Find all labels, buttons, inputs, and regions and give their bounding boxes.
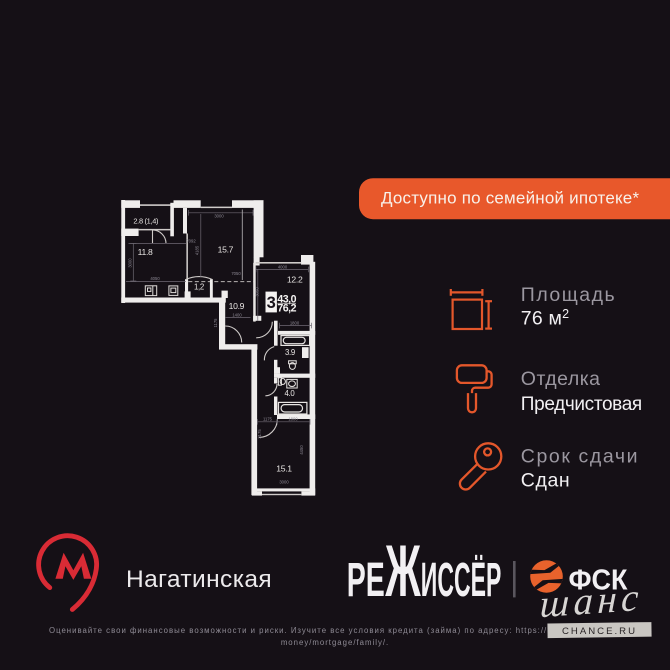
svg-text:Нагатинская: Нагатинская: [126, 566, 272, 593]
svg-text:1800: 1800: [288, 417, 298, 422]
svg-text:4450: 4450: [299, 445, 304, 455]
svg-text:Сдан: Сдан: [521, 469, 570, 491]
svg-text:шанс: шанс: [539, 576, 643, 626]
svg-text:CHANCE.RU: CHANCE.RU: [562, 626, 637, 637]
svg-text:1400: 1400: [232, 312, 242, 317]
svg-text:7092: 7092: [186, 239, 196, 244]
svg-text:3175: 3175: [257, 429, 262, 439]
svg-text:1175: 1175: [213, 318, 218, 328]
svg-text:3050: 3050: [255, 287, 260, 297]
svg-text:15.1: 15.1: [276, 464, 292, 474]
svg-text:4185: 4185: [195, 245, 200, 255]
svg-text:РЕ: РЕ: [347, 553, 385, 607]
svg-text:12.2: 12.2: [287, 274, 303, 284]
svg-text:Оценивайте свои финансовые воз: Оценивайте свои финансовые возможности и…: [49, 626, 627, 635]
svg-text:3.9: 3.9: [285, 348, 295, 357]
svg-text:10.9: 10.9: [229, 301, 245, 311]
svg-text:Доступно по семейной ипотеке*: Доступно по семейной ипотеке*: [381, 188, 639, 207]
svg-text:3: 3: [267, 294, 276, 312]
svg-text:Отделка: Отделка: [521, 368, 601, 390]
svg-text:1800: 1800: [290, 320, 300, 325]
svg-text:15.7: 15.7: [218, 244, 234, 254]
svg-text:Срок сдачи: Срок сдачи: [521, 446, 639, 468]
svg-text:Ж: Ж: [385, 531, 421, 612]
svg-text:1175: 1175: [263, 417, 273, 422]
svg-text:2.8 (1,4): 2.8 (1,4): [133, 216, 158, 225]
svg-text:Площадь: Площадь: [521, 284, 616, 306]
svg-text:76,2: 76,2: [277, 303, 296, 315]
svg-text:ИССЁР: ИССЁР: [421, 553, 502, 607]
svg-text:money/mortgage/family/.: money/mortgage/family/.: [281, 638, 389, 647]
svg-text:3000: 3000: [127, 258, 132, 268]
svg-text:Предчистовая: Предчистовая: [521, 394, 642, 415]
svg-text:3000: 3000: [214, 214, 224, 219]
svg-text:3000: 3000: [279, 479, 289, 484]
svg-text:4000: 4000: [278, 265, 288, 270]
svg-text:76 м2: 76 м2: [521, 307, 569, 329]
svg-text:1,2: 1,2: [194, 282, 204, 291]
svg-text:11.8: 11.8: [138, 247, 153, 257]
svg-text:7050: 7050: [231, 271, 241, 276]
svg-text:4.0: 4.0: [285, 389, 296, 398]
svg-text:4050: 4050: [150, 276, 160, 281]
